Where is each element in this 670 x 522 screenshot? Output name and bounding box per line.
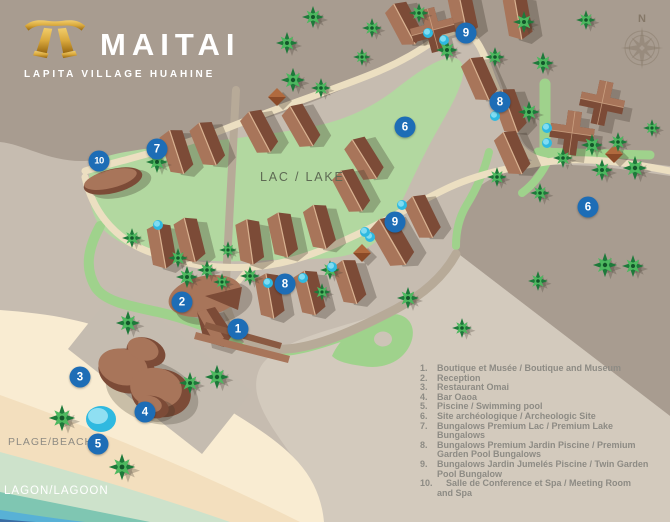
headrest-icon: [22, 12, 88, 62]
legend: 1.Boutique et Musée / Boutique and Museu…: [420, 364, 668, 498]
map-marker-6: 6: [578, 197, 599, 218]
resort-logo: MAITAI LAPITA VILLAGE HUAHINE: [22, 12, 240, 80]
map-marker-7: 7: [147, 139, 168, 160]
map-marker-8: 8: [490, 92, 511, 113]
legend-item-text: Bungalows Jardin Jumelés Piscine / Twin …: [437, 460, 648, 479]
map-marker-8: 8: [275, 274, 296, 295]
legend-item-number: 9.: [420, 460, 437, 479]
legend-item-text: Salle de Conference et Spa / Meeting Roo…: [437, 479, 631, 498]
map-marker-3: 3: [70, 367, 91, 388]
legend-item: 7.Bungalows Premium Lac / Premium Lake B…: [420, 422, 668, 441]
legend-list: 1.Boutique et Musée / Boutique and Museu…: [420, 364, 668, 498]
legend-item: 10.Salle de Conference et Spa / Meeting …: [420, 479, 668, 498]
resort-map: N MAITAI LAPITA VILLAGE HUAHINE LAC / LA…: [0, 0, 670, 522]
legend-item-number: 10.: [420, 479, 437, 498]
swimming-pool: [86, 406, 116, 432]
map-marker-6: 6: [395, 117, 416, 138]
legend-item-text: Bungalows Premium Lac / Premium Lake Bun…: [437, 422, 613, 441]
map-marker-4: 4: [135, 402, 156, 423]
beach-label: PLAGE/BEACH: [8, 436, 93, 448]
legend-item: 9.Bungalows Jardin Jumelés Piscine / Twi…: [420, 460, 668, 479]
map-marker-1: 1: [228, 319, 249, 340]
logo-subtitle: LAPITA VILLAGE HUAHINE: [24, 69, 240, 80]
legend-item-number: 7.: [420, 422, 437, 441]
lagoon-label: LAGON/LAGOON: [4, 485, 109, 497]
legend-item-text: Bungalows Premium Jardin Piscine / Premi…: [437, 441, 636, 460]
legend-item-number: 8.: [420, 441, 437, 460]
map-marker-10: 10: [89, 151, 110, 172]
legend-item: 8.Bungalows Premium Jardin Piscine / Pre…: [420, 441, 668, 460]
map-marker-5: 5: [88, 434, 109, 455]
map-marker-9: 9: [456, 23, 477, 44]
map-marker-2: 2: [172, 292, 193, 313]
logo-title: MAITAI: [100, 29, 240, 62]
map-marker-9: 9: [385, 212, 406, 233]
lake-label: LAC / LAKE: [260, 170, 345, 184]
compass-north-label: N: [638, 13, 646, 25]
